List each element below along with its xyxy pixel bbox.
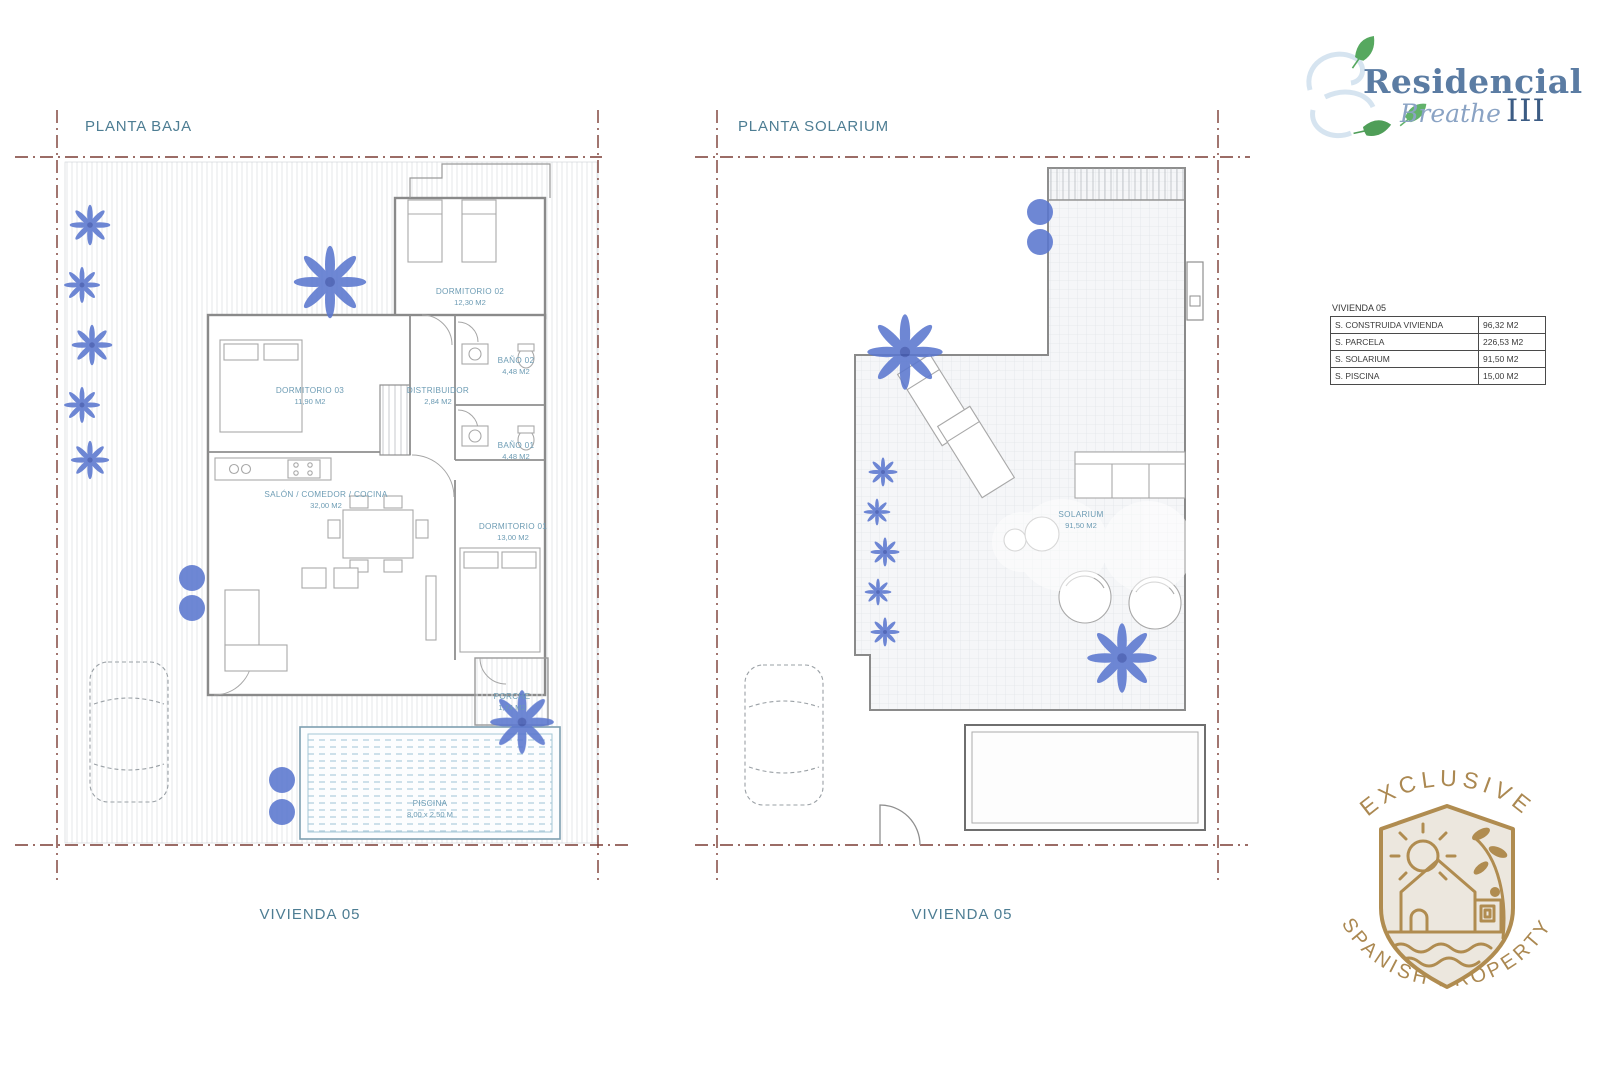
- stairs: [1048, 168, 1185, 200]
- svg-text:13,00 M2: 13,00 M2: [497, 533, 529, 542]
- plan-footer-left: VIVIENDA 05: [210, 906, 410, 923]
- solarium-deck: [855, 168, 1185, 710]
- table-row: S. CONSTRUIDA VIVIENDA 96,32 M2: [1331, 317, 1546, 334]
- svg-text:DORMITORIO 01: DORMITORIO 01: [479, 522, 547, 531]
- svg-text:PORCHE: PORCHE: [494, 692, 531, 701]
- svg-text:11,90 M2: 11,90 M2: [294, 397, 325, 406]
- svg-text:2,84 M2: 2,84 M2: [424, 397, 451, 406]
- svg-text:12,30 M2: 12,30 M2: [454, 298, 486, 307]
- table-row: S. PARCELA 226,53 M2: [1331, 334, 1546, 351]
- svg-text:8,00 x 2,50 M: 8,00 x 2,50 M: [407, 810, 453, 819]
- row-label: S. PISCINA: [1331, 368, 1479, 385]
- table-row: S. PISCINA 15,00 M2: [1331, 368, 1546, 385]
- logo-roman-numeral: III: [1506, 93, 1546, 129]
- row-value: 15,00 M2: [1479, 368, 1546, 385]
- svg-text:SALÓN / COMEDOR / COCINA: SALÓN / COMEDOR / COCINA: [264, 489, 387, 499]
- logo-script: Breathe: [1400, 99, 1501, 128]
- svg-text:SOLARIUM: SOLARIUM: [1058, 510, 1103, 519]
- svg-text:4,48 M2: 4,48 M2: [502, 367, 529, 376]
- svg-text:DORMITORIO 02: DORMITORIO 02: [436, 287, 504, 296]
- svg-text:BAÑO 02: BAÑO 02: [498, 355, 535, 365]
- svg-text:91,50 M2: 91,50 M2: [1065, 521, 1097, 530]
- table-row: S. SOLARIUM 91,50 M2: [1331, 351, 1546, 368]
- stairs: [380, 385, 410, 455]
- svg-text:32,00 M2: 32,00 M2: [310, 501, 342, 510]
- area-summary-table: VIVIENDA 05 S. CONSTRUIDA VIVIENDA 96,32…: [1330, 303, 1546, 385]
- entrance-door-arc: [880, 805, 920, 845]
- row-label: S. PARCELA: [1331, 334, 1479, 351]
- car-outline: [745, 665, 823, 805]
- svg-text:PISCINA: PISCINA: [413, 799, 448, 808]
- floor-plan-planta-solarium: SOLARIUM 91,50 M2: [690, 100, 1330, 940]
- svg-text:4,48 M2: 4,48 M2: [502, 452, 529, 461]
- floor-plan-planta-baja: DORMITORIO 02 12,30 M2 BAÑO 02 4,48 M2 D…: [10, 100, 650, 940]
- svg-text:1,74 M2: 1,74 M2: [498, 703, 525, 712]
- svg-text:DORMITORIO 03: DORMITORIO 03: [276, 386, 344, 395]
- row-value: 91,50 M2: [1479, 351, 1546, 368]
- row-value: 96,32 M2: [1479, 317, 1546, 334]
- logo-wordmark: Residencial: [1363, 62, 1583, 101]
- plan-footer-right: VIVIENDA 05: [862, 906, 1062, 923]
- row-label: S. CONSTRUIDA VIVIENDA: [1331, 317, 1479, 334]
- shaft: [1187, 262, 1203, 320]
- row-value: 226,53 M2: [1479, 334, 1546, 351]
- floor-plan-sheet: PLANTA BAJA: [0, 0, 1620, 1080]
- svg-text:DISTRIBUIDOR: DISTRIBUIDOR: [407, 386, 469, 395]
- row-label: S. SOLARIUM: [1331, 351, 1479, 368]
- pool: [965, 725, 1205, 830]
- summary-title: VIVIENDA 05: [1332, 303, 1546, 313]
- svg-text:BAÑO 01: BAÑO 01: [498, 440, 535, 450]
- exclusive-spanish-property-badge: EXCLUSIVE SPANISH PROPERTY: [1305, 740, 1590, 1035]
